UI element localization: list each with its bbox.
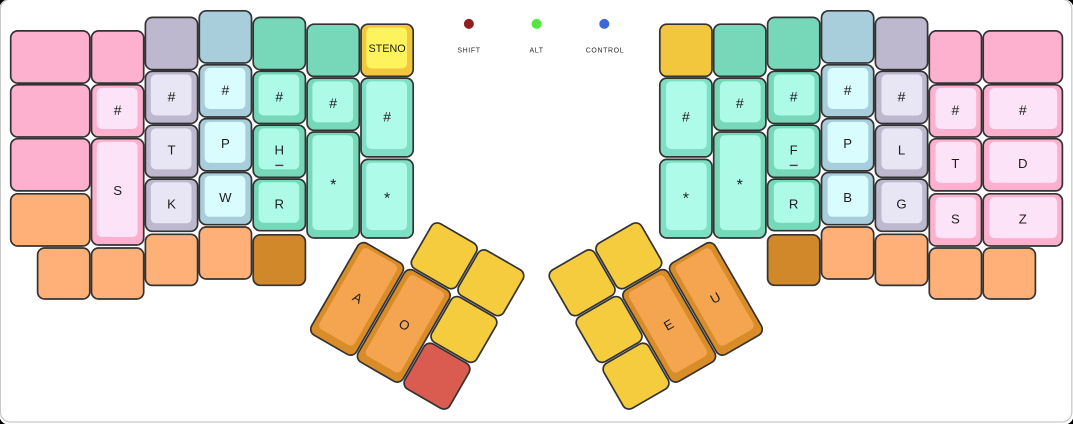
svg-text:ALT: ALT [530, 47, 544, 54]
svg-text:STENO: STENO [368, 43, 405, 55]
svg-text:#: # [736, 95, 744, 111]
svg-text:K: K [167, 197, 176, 212]
svg-text:D: D [1018, 156, 1028, 171]
svg-text:CONTROL: CONTROL [586, 47, 624, 54]
svg-text:R: R [789, 196, 799, 211]
svg-text:SHIFT: SHIFT [457, 47, 480, 54]
svg-text:*: * [330, 177, 336, 194]
svg-text:T: T [167, 143, 175, 158]
svg-text:W: W [219, 190, 232, 205]
svg-text:#: # [844, 82, 852, 98]
svg-text:*: * [683, 191, 689, 208]
svg-text:F: F [790, 143, 798, 158]
svg-text:#: # [952, 102, 960, 118]
svg-text:S: S [113, 183, 122, 198]
svg-text:#: # [682, 109, 690, 125]
svg-text:#: # [168, 88, 176, 104]
svg-text:L: L [898, 143, 905, 158]
svg-text:Z: Z [1019, 211, 1027, 226]
svg-text:P: P [221, 136, 230, 151]
svg-text:*: * [737, 177, 743, 194]
svg-text:*: * [384, 191, 390, 208]
svg-text:#: # [275, 88, 283, 104]
svg-text:#: # [329, 95, 337, 111]
svg-text:#: # [898, 88, 906, 104]
svg-text:#: # [383, 109, 391, 125]
svg-text:T: T [951, 156, 959, 171]
svg-text:#: # [222, 82, 230, 98]
svg-text:#: # [1019, 102, 1027, 118]
svg-text:R: R [275, 196, 285, 211]
svg-text:#: # [114, 102, 122, 118]
svg-text:#: # [790, 88, 798, 104]
svg-text:B: B [843, 190, 852, 205]
svg-text:P: P [843, 136, 852, 151]
svg-text:H: H [275, 143, 285, 158]
svg-text:G: G [896, 197, 906, 212]
svg-text:S: S [951, 211, 960, 226]
